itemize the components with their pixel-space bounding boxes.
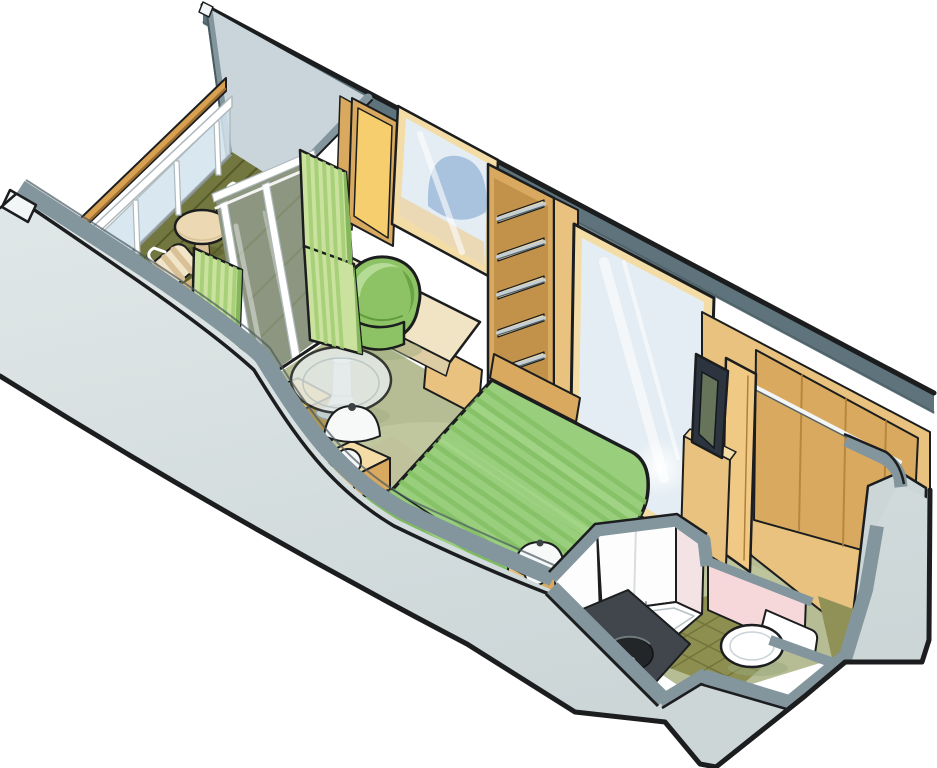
vanity-mirror <box>392 106 498 278</box>
floorplan-illustration: Cruise ship stateroom with private balco… <box>0 0 937 768</box>
floorplan-stage: Cruise ship stateroom with private balco… <box>0 0 937 768</box>
tv-screen <box>699 372 718 448</box>
television <box>692 354 728 458</box>
